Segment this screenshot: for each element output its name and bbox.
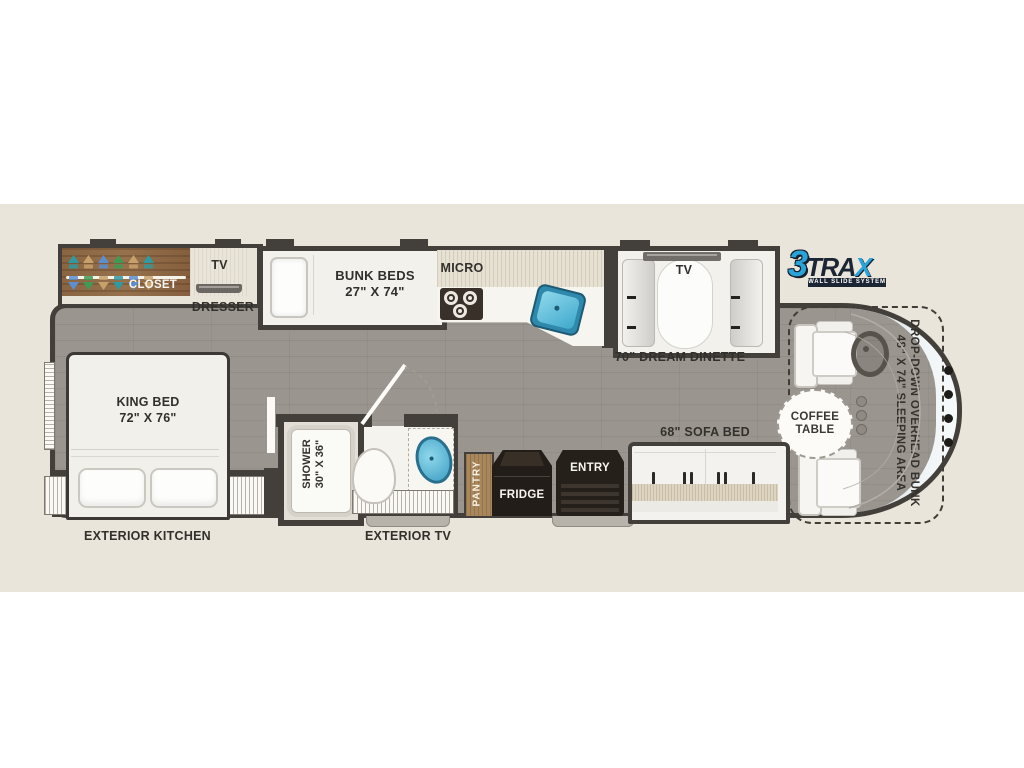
- entry-label: ENTRY: [556, 462, 624, 475]
- tv-label: TV: [190, 258, 249, 272]
- sofa-base-wood: [632, 484, 778, 501]
- passenger-seat-cushion: [816, 458, 861, 508]
- pillow: [78, 468, 146, 508]
- drop-down-bunk-label: DROP-DOWN OVERHEAD BUNK 48" X 74" SLEEPI…: [892, 303, 920, 523]
- tv-icon: [643, 252, 721, 261]
- tv-cabinet: TV: [190, 248, 249, 296]
- dinette-bench-right: [730, 259, 763, 347]
- pocket-door: [266, 396, 276, 454]
- closet: CLOSET: [62, 248, 190, 296]
- closet-label: CLOSET: [117, 279, 189, 292]
- burner-icon: [444, 291, 458, 305]
- hanger-icon: [127, 251, 140, 271]
- armrest: [627, 296, 636, 299]
- pillow: [270, 257, 308, 318]
- sofa-label: 68" SOFA BED: [635, 425, 775, 439]
- coffee-table-line2: TABLE: [796, 424, 835, 437]
- bathroom-wall: [404, 414, 458, 427]
- entry-steps: [561, 484, 619, 512]
- fridge-door-line: [494, 476, 550, 477]
- exterior-tv-label: EXTERIOR TV: [338, 529, 478, 543]
- sofa-base: [632, 501, 778, 512]
- tv-icon: [196, 284, 242, 293]
- slide-dinette: TV: [613, 246, 780, 358]
- fridge-door-facet: [500, 452, 544, 466]
- pillow: [150, 468, 218, 508]
- blanket-fold: [71, 449, 219, 457]
- armrest: [627, 326, 636, 329]
- hanger-icon: [82, 274, 95, 294]
- burner-icon: [463, 291, 477, 305]
- armrest: [731, 296, 740, 299]
- exterior-kitchen-label: EXTERIOR KITCHEN: [60, 529, 235, 543]
- shower-label-line1: SHOWER: [301, 416, 314, 512]
- slide-rail-tab: [400, 239, 428, 246]
- windshield-vent-icon: [944, 414, 953, 423]
- cupholder-icon: [856, 396, 867, 407]
- micro-label: MICRO: [432, 261, 492, 275]
- slide-bunk-beds: BUNK BEDS 27" X 74": [258, 246, 447, 330]
- cupholder-icon: [856, 424, 867, 435]
- hanger-icon: [82, 251, 95, 271]
- shower-label-line2: 30" X 36": [314, 416, 327, 512]
- fridge: FRIDGE: [492, 450, 552, 516]
- pantry-label: PANTRY: [471, 454, 484, 514]
- brand-logo-3trax: 3TRAX WALL SLIDE SYSTEM: [788, 248, 892, 292]
- fridge-label: FRIDGE: [492, 489, 552, 502]
- drop-down-bunk-line2: 48" X 74" SLEEPING AREA: [893, 303, 907, 523]
- logo-tra: TRA: [806, 256, 855, 279]
- windshield-vent-icon: [944, 390, 953, 399]
- king-bed-dims: 72" X 76": [88, 411, 208, 425]
- window: [44, 362, 55, 450]
- bunk-beds-label: BUNK BEDS: [315, 269, 435, 284]
- mattress-divider: [313, 255, 314, 315]
- king-bed-label: KING BED: [88, 395, 208, 409]
- floorplan-canvas: CLOSET TV DRESSER BUNK BEDS 27" X 74" MI…: [0, 0, 1024, 768]
- windshield-vent-icon: [944, 438, 953, 447]
- dinette-bench-left: [622, 259, 655, 347]
- bunk-beds-dims: 27" X 74": [315, 285, 435, 300]
- dinette-label: 70" DREAM DINETTE: [598, 350, 762, 364]
- drop-down-bunk-line1: DROP-DOWN OVERHEAD BUNK: [907, 303, 921, 523]
- steering-wheel-icon: [851, 331, 889, 377]
- logo-tagline: WALL SLIDE SYSTEM: [808, 278, 886, 287]
- toilet-icon: [352, 448, 396, 504]
- coffee-table-line1: COFFEE: [791, 411, 839, 424]
- burner-icon: [453, 304, 467, 318]
- exterior-tv-mount: [366, 516, 450, 527]
- slide-rail-tab: [266, 239, 294, 246]
- slide-closet-unit: CLOSET TV: [58, 244, 261, 308]
- armrest: [731, 326, 740, 329]
- dinette-tv-label: TV: [655, 263, 713, 277]
- entry-door: ENTRY: [556, 450, 624, 516]
- hanger-icon: [142, 251, 155, 271]
- dresser-label: DRESSER: [180, 300, 266, 314]
- entry-step-exterior: [552, 516, 634, 527]
- shower-label: SHOWER 30" X 36": [301, 416, 329, 512]
- logo-3: 3: [788, 248, 808, 280]
- cupholder-icon: [856, 410, 867, 421]
- hanger-icon: [97, 274, 110, 294]
- king-bed: KING BED 72" X 76": [66, 352, 230, 520]
- hanger-icon: [97, 251, 110, 271]
- windshield-vent-icon: [944, 366, 953, 375]
- hanger-icon: [67, 251, 80, 271]
- stove-icon: [440, 288, 483, 320]
- sofa-bed: [628, 442, 790, 524]
- logo-x: X: [855, 256, 872, 279]
- hanger-icon: [112, 251, 125, 271]
- hanger-icon: [67, 274, 80, 294]
